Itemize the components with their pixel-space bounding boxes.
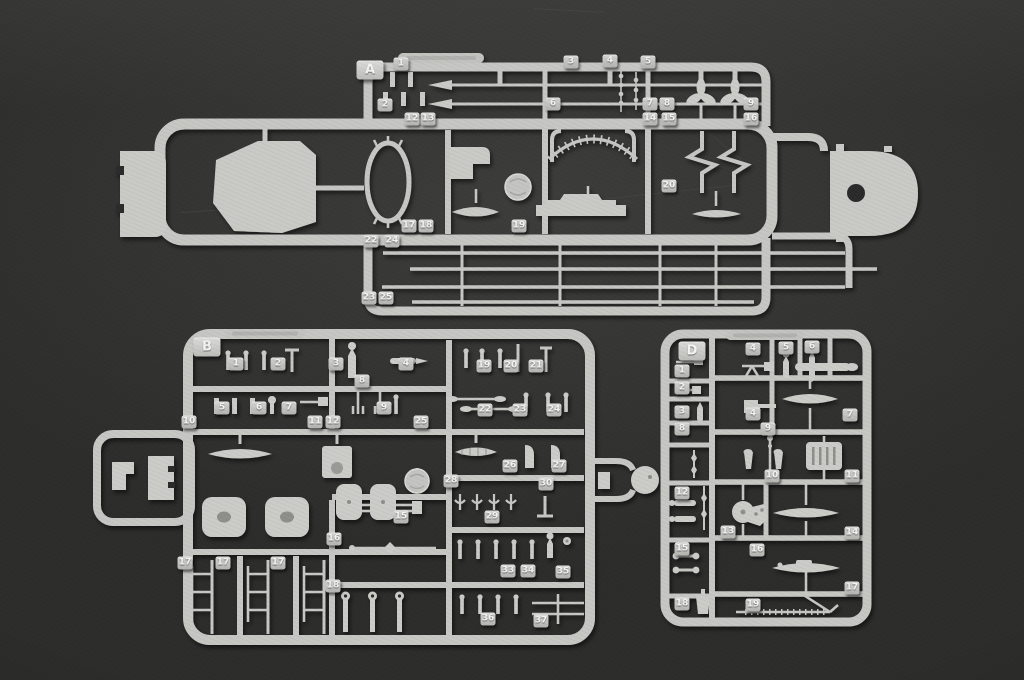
mould-stamp-circle: [505, 174, 531, 200]
part-number-tag: 22: [478, 404, 493, 417]
part-number-tag: 17: [216, 557, 231, 570]
part-number-tag: 37: [534, 615, 549, 628]
part-number-tag: 2: [378, 99, 393, 112]
part-number-tag: 23: [362, 292, 377, 305]
part-number-tag: 17: [402, 220, 417, 233]
part-number-tag: 19: [512, 220, 527, 233]
mould-stamp-circle: [405, 469, 429, 493]
sprues-illustration: [0, 0, 1024, 680]
part-number-tag: 16: [327, 533, 342, 546]
part-number-tag: 4: [399, 358, 414, 371]
part-number-tag: 18: [675, 598, 690, 611]
part-number-tag: 6: [546, 98, 561, 111]
part-number-tag: 9: [761, 423, 776, 436]
sprue-a: [116, 53, 918, 311]
part-number-tag: 11: [308, 416, 323, 429]
sprue-letter-tag-a: A: [357, 61, 384, 80]
part-number-tag: 2: [675, 382, 690, 395]
part-number-tag: 13: [721, 526, 736, 539]
part-number-tag: 35: [556, 566, 571, 579]
part-number-tag: 5: [641, 56, 656, 69]
part-number-tag: 15: [662, 113, 677, 126]
part-number-tag: 9: [744, 98, 759, 111]
part-number-tag: 14: [845, 527, 860, 540]
part-number-tag: 6: [252, 402, 267, 415]
part-number-tag: 24: [547, 404, 562, 417]
part-number-tag: 27: [552, 460, 567, 473]
sprue-b: [97, 329, 659, 640]
part-number-tag: 25: [379, 292, 394, 305]
part-number-tag: 7: [282, 402, 297, 415]
part-number-tag: 17: [271, 557, 286, 570]
part-number-tag: 26: [503, 460, 518, 473]
part-number-tag: 25: [414, 416, 429, 429]
part-number-tag: 28: [444, 475, 459, 488]
part-number-tag: 3: [329, 358, 344, 371]
part-number-tag: 13: [421, 113, 436, 126]
part-number-tag: 5: [215, 402, 230, 415]
part-number-tag: 17: [178, 557, 193, 570]
part-number-tag: 3: [675, 406, 690, 419]
part-number-tag: 1: [394, 58, 409, 71]
part-number-tag: 22: [364, 235, 379, 248]
part-number-tag: 15: [394, 511, 409, 524]
part-number-tag: 5: [779, 342, 794, 355]
part-number-tag: 6: [805, 341, 820, 354]
mould-stamp-plate: [726, 331, 804, 340]
part-number-tag: 2: [271, 358, 286, 371]
sprue-letter-tag-b: B: [194, 338, 221, 357]
part-number-tag: 1: [229, 358, 244, 371]
part-number-tag: 34: [521, 565, 536, 578]
part-number-tag: 36: [481, 613, 496, 626]
part-number-tag: 4: [603, 55, 618, 68]
part-number-tag: 23: [513, 404, 528, 417]
part-number-tag: 33: [501, 565, 516, 578]
part-number-tag: 16: [750, 544, 765, 557]
part-number-tag: 19: [746, 599, 761, 612]
part-number-tag: 4: [746, 408, 761, 421]
part-number-tag: 12: [675, 487, 690, 500]
part-number-tag: 15: [675, 543, 690, 556]
part-number-tag: 21: [529, 360, 544, 373]
part-number-tag: 20: [504, 360, 519, 373]
mould-stamp-plate: [398, 53, 484, 63]
sprues-photo-scene: Photograph of three light-grey injection…: [0, 0, 1024, 680]
part-number-tag: 10: [765, 470, 780, 483]
part-number-tag: 8: [660, 98, 675, 111]
part-number-tag: 8: [355, 375, 370, 388]
part-number-tag: 16: [744, 113, 759, 126]
part-number-tag: 7: [843, 409, 858, 422]
part-number-tag: 9: [377, 402, 392, 415]
part-number-tag: 8: [675, 423, 690, 436]
part-number-tag: 1: [675, 365, 690, 378]
sprue-letter-tag-d: D: [679, 342, 706, 361]
part-number-tag: 3: [564, 56, 579, 69]
part-number-tag: 11: [845, 470, 860, 483]
part-number-tag: 7: [643, 98, 658, 111]
part-number-tag: 20: [662, 180, 677, 193]
part-number-tag: 30: [539, 478, 554, 491]
part-number-tag: 4: [746, 343, 761, 356]
part-number-tag: 17: [845, 582, 860, 595]
part-number-tag: 18: [326, 580, 341, 593]
part-number-tag: 18: [419, 220, 434, 233]
part-number-tag: 12: [326, 416, 341, 429]
part-number-tag: 14: [643, 113, 658, 126]
part-number-tag: 29: [485, 511, 500, 524]
part-number-tag: 19: [477, 360, 492, 373]
part-number-tag: 24: [385, 235, 400, 248]
part-number-tag: 10: [182, 416, 197, 429]
part-number-tag: 12: [405, 113, 420, 126]
mould-stamp-plate: [225, 329, 305, 338]
